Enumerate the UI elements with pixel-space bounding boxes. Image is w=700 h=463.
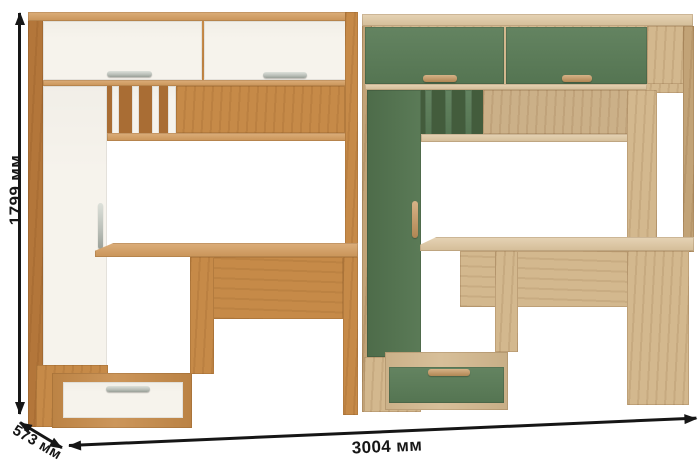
right-unit-desk-left-leg bbox=[495, 251, 518, 352]
right-unit-top-cornice bbox=[362, 14, 693, 26]
left-unit-hutch-right-frame bbox=[345, 12, 358, 258]
left-unit-top-door-left-handle bbox=[107, 71, 152, 77]
left-unit-pigeonhole-divider-3 bbox=[152, 86, 159, 135]
height-dimension-label: 1799 мм bbox=[6, 138, 26, 242]
right-unit-top-door-left-handle bbox=[423, 75, 457, 82]
left-unit-desk-right-leg bbox=[343, 257, 358, 415]
right-unit-desk-back-panel bbox=[460, 251, 630, 307]
right-unit-top-door-right-handle bbox=[562, 75, 592, 82]
right-unit-shelf-bottom-board bbox=[421, 134, 648, 142]
right-unit bbox=[362, 13, 695, 415]
width-dimension-label: 3004 мм bbox=[325, 434, 450, 459]
right-unit-pigeonhole-divider-1 bbox=[425, 90, 432, 137]
left-unit-desk-left-leg bbox=[190, 257, 214, 374]
left-unit-desk-back-panel bbox=[213, 257, 343, 319]
left-unit-top-cornice bbox=[28, 12, 358, 21]
right-unit-pigeonhole-divider-3 bbox=[465, 90, 472, 137]
right-unit-desk-top bbox=[420, 237, 694, 251]
left-unit-shelf-bottom-board bbox=[107, 133, 358, 141]
left-unit-shelf-back-panel bbox=[176, 86, 345, 133]
furniture-product-image: 1799 мм 573 мм 3004 мм bbox=[0, 0, 700, 463]
left-unit-pigeonhole-divider-2 bbox=[132, 86, 139, 135]
left-unit-pigeonhole-divider-1 bbox=[112, 86, 119, 135]
left-unit-desk-top bbox=[95, 243, 358, 257]
left-unit-pigeonhole-side-wall bbox=[168, 86, 176, 135]
right-unit-drawer-handle bbox=[428, 369, 470, 376]
right-unit-right-outer-frame bbox=[683, 26, 694, 252]
left-unit-wardrobe-door-handle bbox=[98, 203, 103, 249]
right-unit-wardrobe-door-handle bbox=[412, 201, 418, 238]
left-unit-top-door-right-handle bbox=[263, 72, 307, 78]
right-unit-pigeonhole-divider-2 bbox=[445, 90, 452, 137]
left-unit bbox=[28, 12, 360, 430]
left-unit-drawer-handle bbox=[106, 386, 150, 392]
right-unit-hutch-upright bbox=[627, 90, 657, 242]
right-unit-desk-right-panel bbox=[627, 251, 689, 405]
right-unit-shelf-back-panel bbox=[483, 90, 637, 134]
